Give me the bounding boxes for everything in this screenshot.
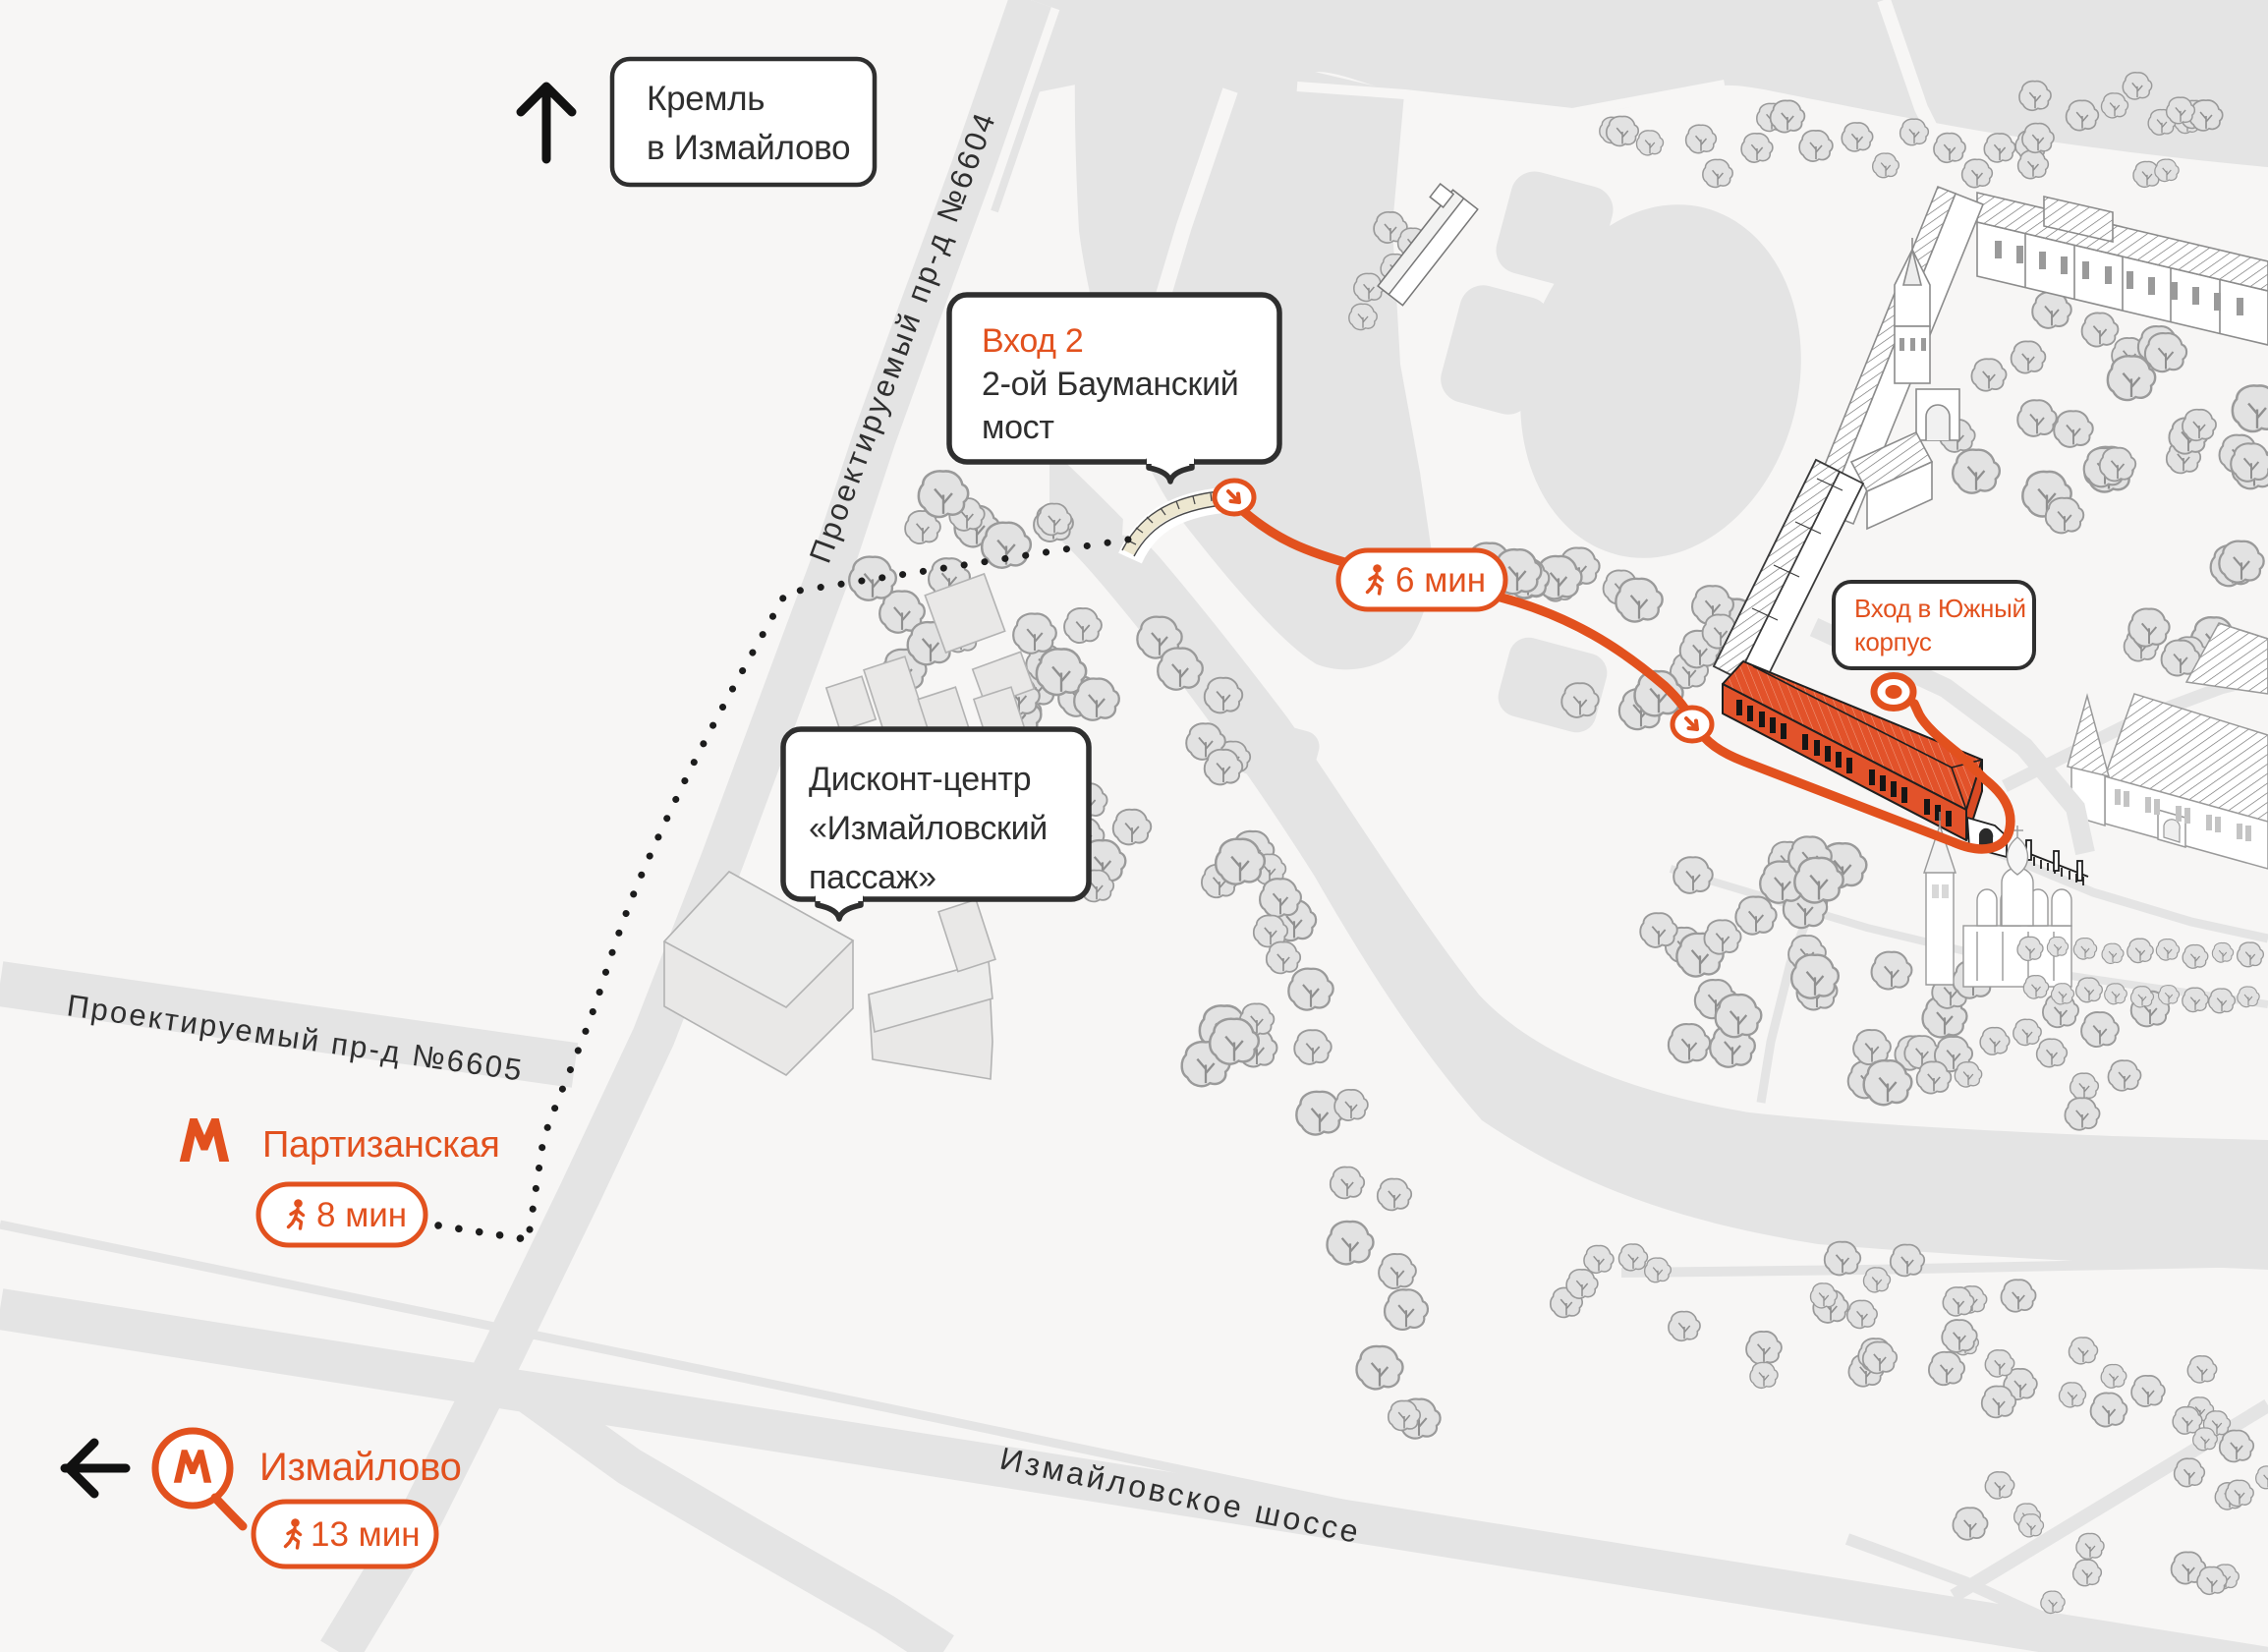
svg-text:корпус: корпус [1854,627,1932,656]
svg-text:в Измайлово: в Измайлово [647,129,850,167]
svg-text:13 мин: 13 мин [311,1515,421,1554]
svg-text:Вход в Южный: Вход в Южный [1854,594,2026,623]
svg-text:Дисконт-центр: Дисконт-центр [809,761,1031,798]
svg-text:мост: мост [982,409,1054,446]
svg-text:Вход 2: Вход 2 [982,322,1083,360]
svg-text:Кремль: Кремль [647,80,765,118]
svg-text:Партизанская: Партизанская [262,1124,500,1166]
svg-text:6 мин: 6 мин [1395,561,1486,599]
svg-text:2-ой Бауманский: 2-ой Бауманский [982,366,1238,403]
svg-text:8 мин: 8 мин [316,1196,407,1234]
svg-text:пассаж»: пассаж» [809,859,936,896]
svg-text:Измайлово: Измайлово [259,1446,462,1489]
svg-text:«Измайловский: «Измайловский [809,810,1048,847]
